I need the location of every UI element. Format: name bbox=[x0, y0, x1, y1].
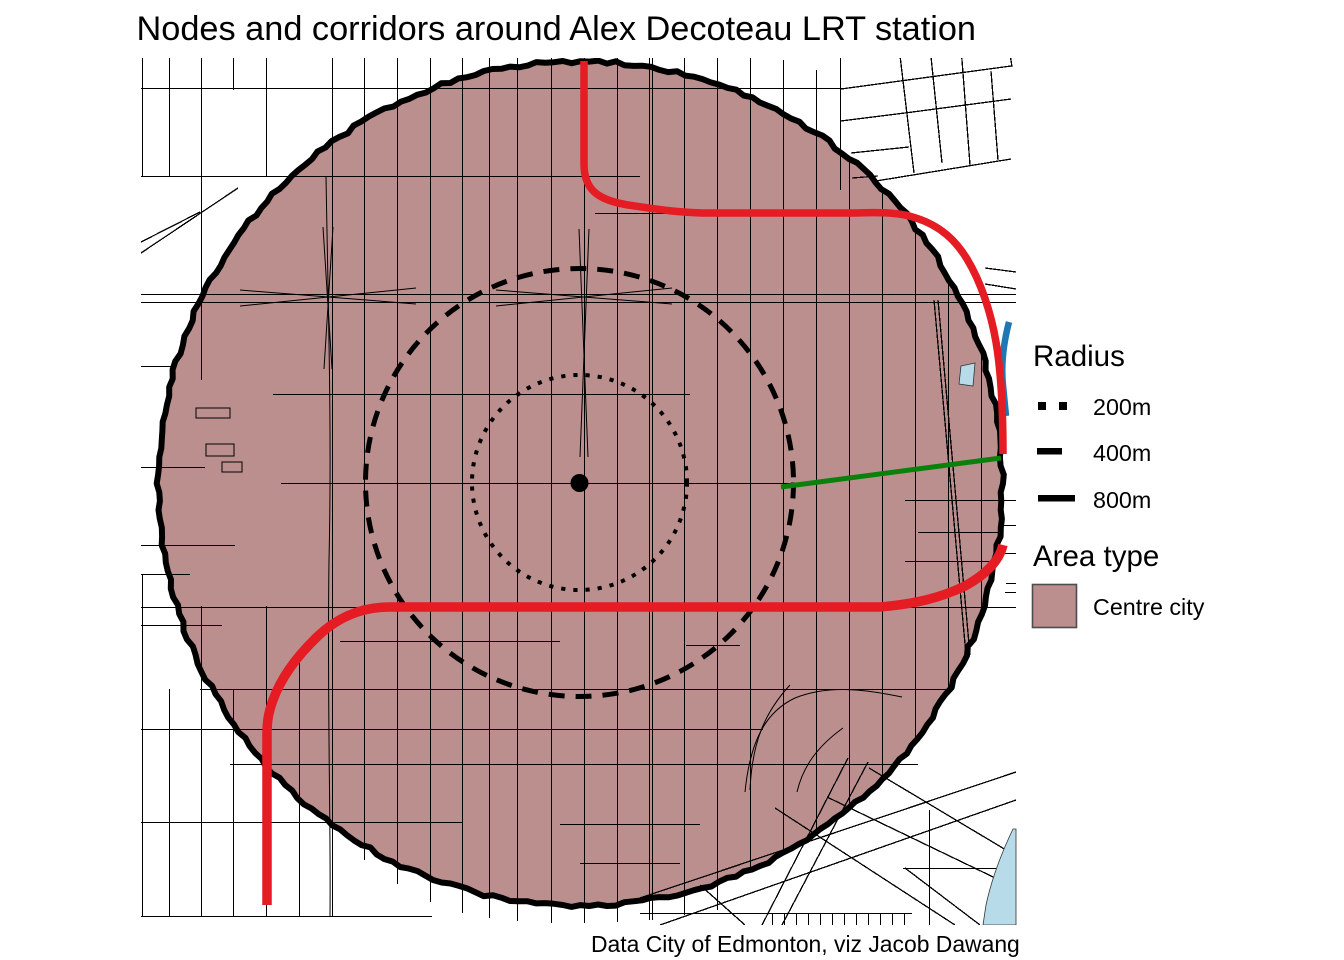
svg-text:Area type: Area type bbox=[1033, 540, 1159, 573]
svg-text:Radius: Radius bbox=[1033, 340, 1125, 373]
svg-text:200m: 200m bbox=[1093, 394, 1151, 420]
svg-text:Nodes and corridors around Ale: Nodes and corridors around Alex Decoteau… bbox=[137, 10, 977, 48]
svg-text:800m: 800m bbox=[1093, 487, 1151, 513]
svg-text:Data City of Edmonton, viz Jac: Data City of Edmonton, viz Jacob Dawang bbox=[591, 931, 1020, 957]
svg-text:Centre city: Centre city bbox=[1093, 594, 1205, 620]
svg-text:400m: 400m bbox=[1093, 440, 1151, 466]
